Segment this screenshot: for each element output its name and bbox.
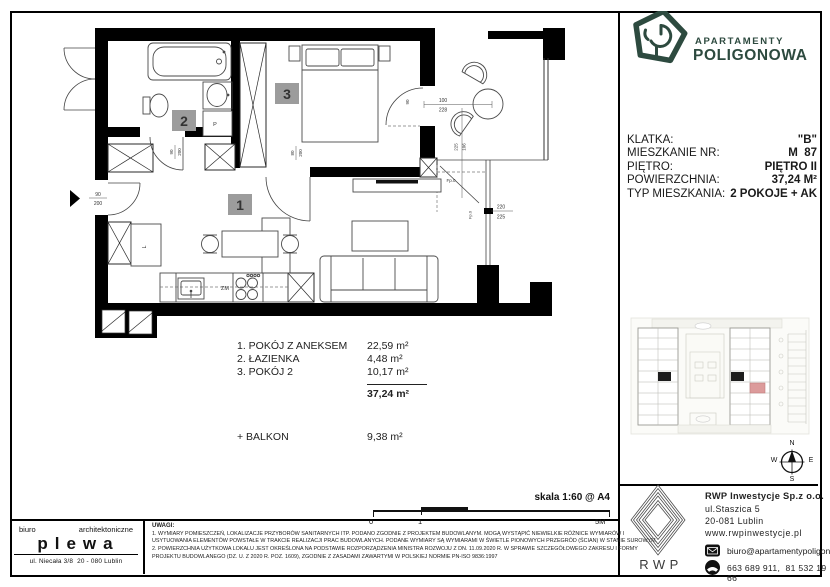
- badge-living-room: 1: [228, 194, 252, 215]
- svg-text:3: 3: [283, 86, 291, 102]
- svg-text:90: 90: [169, 149, 174, 155]
- architect-box-divider: [143, 521, 145, 574]
- developer-logo-text: RWP: [628, 557, 694, 572]
- svg-text:80: 80: [290, 150, 295, 156]
- developer-logo: [631, 485, 685, 555]
- svg-text:1: 1: [236, 197, 244, 213]
- site-unit-marker-left: [658, 372, 671, 381]
- wardrobe-l: L: [131, 224, 161, 266]
- architect-word-1: biuro: [19, 525, 36, 534]
- svg-text:200: 200: [94, 201, 103, 207]
- site-highlighted-apartment: [750, 383, 765, 393]
- svg-text:Fp.0: Fp.0: [468, 210, 473, 219]
- room-area: 22,59 m²: [367, 340, 408, 353]
- dim-bath-door: 90 200: [169, 145, 182, 159]
- svg-text:225: 225: [497, 215, 506, 221]
- balcony-chair-1: [462, 58, 492, 84]
- balcony-door-swing: [386, 88, 423, 125]
- architect-name: plewa: [14, 534, 138, 555]
- svg-text:200: 200: [298, 149, 303, 157]
- info-value: 37,24 M²: [772, 174, 817, 187]
- svg-text:225: 225: [454, 143, 459, 151]
- info-value: PIĘTRO II: [765, 161, 817, 174]
- svg-text:90: 90: [405, 99, 410, 105]
- brand-logo-icon: [636, 11, 685, 60]
- total-rule: [367, 384, 427, 385]
- badge-bedroom: 3: [275, 83, 299, 104]
- kitchen-sink: [178, 278, 204, 299]
- info-label: KLATKA:: [627, 134, 673, 147]
- compass-north-label: N: [786, 440, 798, 447]
- balcony-row: + BALKON 9,38 m²: [237, 431, 437, 444]
- svg-text:2: 2: [180, 113, 188, 129]
- wardrobe-label: L: [142, 245, 148, 248]
- room-row-3: 3. POKÓJ 2 10,17 m²: [237, 366, 437, 379]
- room-area: 4,48 m²: [367, 353, 403, 366]
- info-label: POWIERZCHNIA:: [627, 174, 720, 187]
- info-label: MIESZKANIE NR:: [627, 147, 720, 160]
- developer-phones: 663 689 911, 81 532 19 66: [727, 563, 830, 583]
- notes-line: USYTUOWANIA ELEMENTÓW POWSTAŁE W TRAKCIE…: [152, 538, 614, 546]
- balcony-table: [473, 89, 503, 119]
- bathtub: [148, 43, 231, 80]
- sink-label: ZM: [221, 286, 229, 292]
- info-row-typ: TYP MIESZKANIA: 2 POKOJE + AK: [627, 188, 817, 201]
- info-row-powierzchnia: POWIERZCHNIA: 37,24 M²: [627, 174, 817, 187]
- compass-rose: [780, 450, 805, 475]
- info-label: TYP MIESZKANIA:: [627, 188, 725, 201]
- site-unit-marker-right: [731, 372, 744, 381]
- washer-label: P: [213, 122, 217, 128]
- svg-text:100: 100: [439, 98, 448, 104]
- developer-company: RWP Inwestycje Sp.z o.o.: [705, 491, 824, 501]
- dim-entry: 90 200: [89, 192, 107, 207]
- notes-line: 2. POWIERZCHNIA UŻYTKOWA LOKALU JEST OKR…: [152, 546, 614, 554]
- developer-city: 20-081 Lublin: [705, 516, 764, 526]
- balcony-chair-2: [446, 107, 473, 137]
- balcony-name: + BALKON: [237, 431, 367, 444]
- room-name: 2. ŁAZIENKA: [237, 353, 367, 366]
- entry-door-swing: [108, 183, 140, 215]
- scale-label: skala 1:60 @ A4: [420, 492, 610, 503]
- apartment-info: KLATKA: "B" MIESZKANIE NR: M 87 PIĘTRO: …: [627, 134, 817, 201]
- toilet: [143, 94, 168, 117]
- corner-door-leaf: [440, 166, 479, 203]
- phone-icon: [705, 560, 720, 575]
- brand-line-1: APARTAMENTY: [695, 36, 784, 47]
- washing-machine: P: [203, 111, 232, 136]
- room-name: 3. POKÓJ 2: [237, 366, 367, 379]
- total-area: 37,24 m²: [367, 388, 437, 400]
- room-row-1: 1. POKÓJ Z ANEKSEM 22,59 m²: [237, 340, 437, 353]
- architect-box: biuro architektoniczne plewa ul. Niecała…: [14, 525, 138, 565]
- bedroom-door-swing: [266, 177, 310, 221]
- washbasin: [203, 82, 232, 109]
- compass-west-label: W: [768, 457, 780, 464]
- hall-door-swing-1: [64, 48, 95, 79]
- bed: [289, 45, 390, 142]
- info-label: PIĘTRO:: [627, 161, 673, 174]
- entry-arrow: [70, 190, 80, 207]
- notes-block: UWAGI: 1. WYMIARY POMIESZCZEŃ, LOKALIZAC…: [152, 523, 614, 561]
- developer-email: biuro@apartamentypoligonowa.pl: [727, 546, 830, 556]
- room-list: 1. POKÓJ Z ANEKSEM 22,59 m² 2. ŁAZIENKA …: [237, 340, 437, 444]
- balcony-area: 9,38 m²: [367, 431, 403, 444]
- hall-door-swing-2: [64, 79, 95, 110]
- info-row-mieszkanie: MIESZKANIE NR: M 87: [627, 147, 817, 160]
- corner-door-label: Fp.0: [446, 178, 456, 183]
- info-value: "B": [798, 134, 817, 147]
- room-area: 10,17 m²: [367, 366, 408, 379]
- notes-title: UWAGI:: [152, 523, 614, 529]
- dim-bedroom-door: 80 200: [290, 146, 303, 160]
- floor-plan-sheet: P ZM: [0, 0, 830, 587]
- badge-bathroom: 2: [172, 110, 196, 131]
- architect-word-2: architektoniczne: [79, 525, 133, 534]
- brand-line-2: POLIGONOWA: [693, 47, 808, 65]
- svg-text:228: 228: [439, 108, 448, 114]
- developer-street: ul.Staszica 5: [705, 504, 760, 514]
- compass-east-label: E: [805, 457, 817, 464]
- info-row-klatka: KLATKA: "B": [627, 134, 817, 147]
- notes-line: PROJEKTU BUDOWLANEGO (DZ. U. Z 2020 R. P…: [152, 554, 614, 562]
- architect-address: ul. Niecała 3/8 20 - 080 Lublin: [14, 558, 138, 565]
- balcony-glazing: [437, 58, 548, 265]
- svg-text:90: 90: [95, 192, 101, 198]
- info-row-pietro: PIĘTRO: PIĘTRO II: [627, 161, 817, 174]
- coffee-table: [352, 221, 408, 251]
- site-plan: [631, 318, 809, 434]
- info-value: 2 POKOJE + AK: [730, 188, 817, 201]
- compass-south-label: S: [786, 476, 798, 483]
- email-icon: [705, 545, 720, 557]
- room-row-2: 2. ŁAZIENKA 4,48 m²: [237, 353, 437, 366]
- svg-text:106: 106: [462, 143, 467, 151]
- svg-text:200: 200: [177, 148, 182, 156]
- tv-console: [353, 179, 441, 192]
- dining-set: [202, 231, 299, 257]
- svg-text:220: 220: [497, 205, 506, 211]
- developer-website: www.rwpinwestycje.pl: [705, 528, 802, 538]
- info-value: M 87: [788, 147, 817, 160]
- sofa: [320, 256, 438, 302]
- room-name: 1. POKÓJ Z ANEKSEM: [237, 340, 367, 353]
